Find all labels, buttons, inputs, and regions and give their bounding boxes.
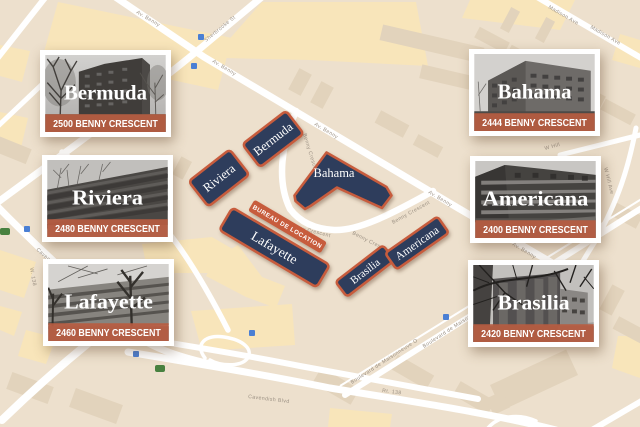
svg-text:Bahama: Bahama (497, 79, 571, 103)
svg-text:2460 BENNY CRESCENT: 2460 BENNY CRESCENT (56, 328, 161, 339)
svg-text:Lafayette: Lafayette (64, 289, 153, 313)
svg-text:2444 BENNY CRESCENT: 2444 BENNY CRESCENT (482, 118, 587, 129)
svg-text:Americana: Americana (483, 188, 589, 210)
svg-text:Brasilia: Brasilia (497, 290, 569, 314)
svg-text:2400 BENNY CRESCENT: 2400 BENNY CRESCENT (483, 225, 588, 236)
svg-text:Bermuda: Bermuda (64, 80, 147, 104)
svg-text:2480 BENNY CRESCENT: 2480 BENNY CRESCENT (55, 224, 160, 235)
svg-text:Bahama: Bahama (314, 166, 355, 180)
svg-text:2500 BENNY CRESCENT: 2500 BENNY CRESCENT (53, 119, 158, 130)
svg-text:Riviera: Riviera (72, 185, 143, 209)
svg-text:2420 BENNY CRESCENT: 2420 BENNY CRESCENT (481, 329, 586, 340)
